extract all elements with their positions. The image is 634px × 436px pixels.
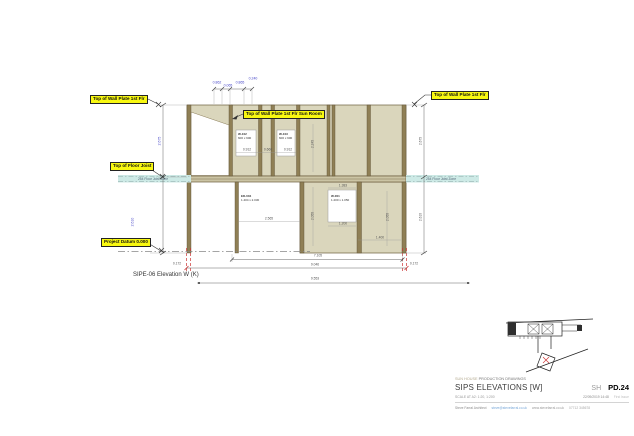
architect-name: Steve Farral Architect [455,407,487,410]
sheet-title-row: SIPS ELEVATIONS [W] SH PD.24 [455,383,629,392]
title-block-divider [455,402,629,403]
scale-line: SCALE AT A2: 1:20, 1:200 [455,395,495,399]
elevation-drawing [0,0,634,436]
key-plan-location-mark [543,357,549,363]
window-opening-w103 [277,130,295,156]
project-name: SUN HOUSE [455,377,478,381]
revision-note: First Issue [614,395,629,399]
window-opening-w001 [328,190,356,222]
meta-group: 22/09/2019 14:48 First Issue [583,395,629,399]
key-plan-solid-block [508,323,516,335]
floor-joist-band [187,176,406,182]
sheet-title: SIPS ELEVATIONS [W] [455,383,543,392]
sheet-id-group: SH PD.24 [591,383,629,392]
sheet-meta-row: SCALE AT A2: 1:20, 1:200 22/09/2019 14:4… [455,395,629,399]
architect-website: www.stevefarral.co.uk [532,407,564,410]
floor-joist-zone-label-right: 254 Floor Joist Zone [426,177,456,181]
datetime-stamp: 22/09/2019 14:48 [583,395,609,399]
sheet-code: SH [591,385,601,392]
key-plan [506,319,593,372]
project-line: SUN HOUSE PRODUCTION DRAWINGS [455,378,526,382]
title-block: SUN HOUSE PRODUCTION DRAWINGS SIPS ELEVA… [455,378,629,420]
drawing-set-name: PRODUCTION DRAWINGS [479,377,526,381]
architect-email: steve@stevefarral.co.uk [492,407,527,410]
elevation-title: SIPE-06 Elevation W (K) [133,272,199,278]
sheet-number: PD.24 [608,383,629,392]
drawing-sheet: 0.8620.0650.8650.2402.6752.6102.6752.610… [0,0,634,436]
title-line-dot-right [467,282,469,284]
contact-line: Steve Farral Architect steve@stevefarral… [455,407,590,410]
window-opening-w102 [236,130,256,156]
floor-joist-zone-label-left: 254 Floor Joist Zone [138,177,168,181]
title-line-dot-left [198,282,200,284]
architect-phone: 07712 345678 [569,407,590,410]
